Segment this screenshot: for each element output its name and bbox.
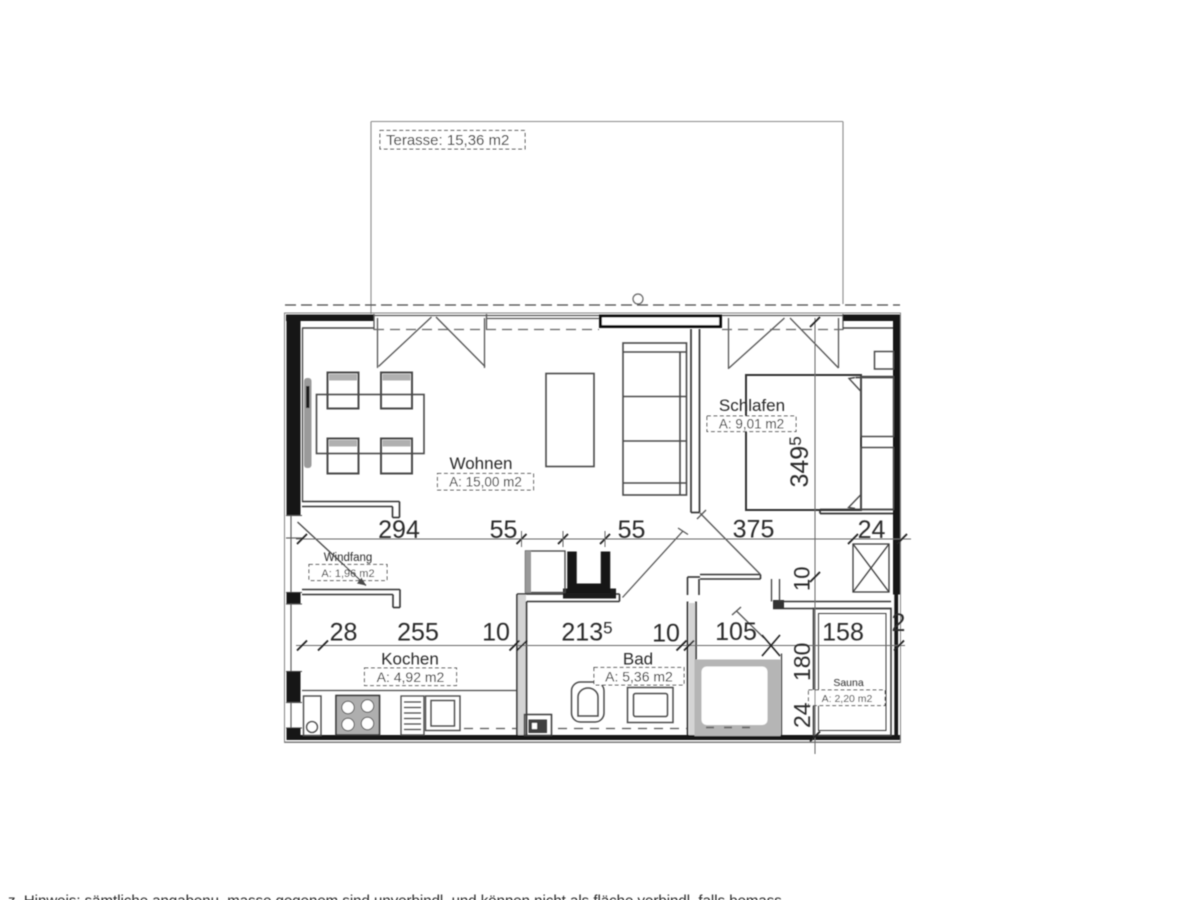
svg-text:255: 255 — [397, 619, 439, 647]
svg-text:24: 24 — [789, 702, 815, 728]
svg-text:Sauna: Sauna — [833, 677, 864, 689]
svg-text:55: 55 — [490, 516, 518, 544]
svg-text:375: 375 — [733, 516, 775, 544]
svg-text:Kochen: Kochen — [381, 650, 439, 669]
svg-text:Bad: Bad — [623, 650, 653, 669]
svg-text:180: 180 — [789, 643, 815, 681]
svg-text:28: 28 — [330, 619, 358, 647]
svg-text:Terasse: 15,36 m2: Terasse: 15,36 m2 — [386, 132, 509, 149]
svg-text:A: 5,36 m2: A: 5,36 m2 — [605, 669, 673, 685]
svg-text:10: 10 — [790, 567, 815, 591]
svg-text:294: 294 — [378, 516, 420, 544]
svg-text:2: 2 — [892, 609, 906, 637]
svg-text:Schlafen: Schlafen — [719, 396, 785, 415]
svg-text:158: 158 — [822, 619, 864, 647]
svg-text:A: 4,92 m2: A: 4,92 m2 — [377, 669, 445, 685]
svg-text:10: 10 — [482, 619, 510, 647]
svg-text:A: 15,00 m2: A: 15,00 m2 — [449, 475, 522, 490]
svg-text:A: 1,96 m2: A: 1,96 m2 — [321, 568, 374, 580]
svg-text:24: 24 — [858, 516, 886, 544]
svg-text:55: 55 — [618, 516, 646, 544]
svg-text:Wohnen: Wohnen — [449, 454, 512, 473]
svg-text:10: 10 — [652, 620, 680, 648]
svg-text:z. Hinweis: sämtliche angabenu: z. Hinweis: sämtliche angabenu. masse ge… — [8, 893, 782, 901]
svg-text:105: 105 — [715, 618, 757, 646]
svg-text:A: 2,20 m2: A: 2,20 m2 — [822, 693, 873, 705]
svg-text:A: 9,01 m2: A: 9,01 m2 — [719, 417, 784, 432]
